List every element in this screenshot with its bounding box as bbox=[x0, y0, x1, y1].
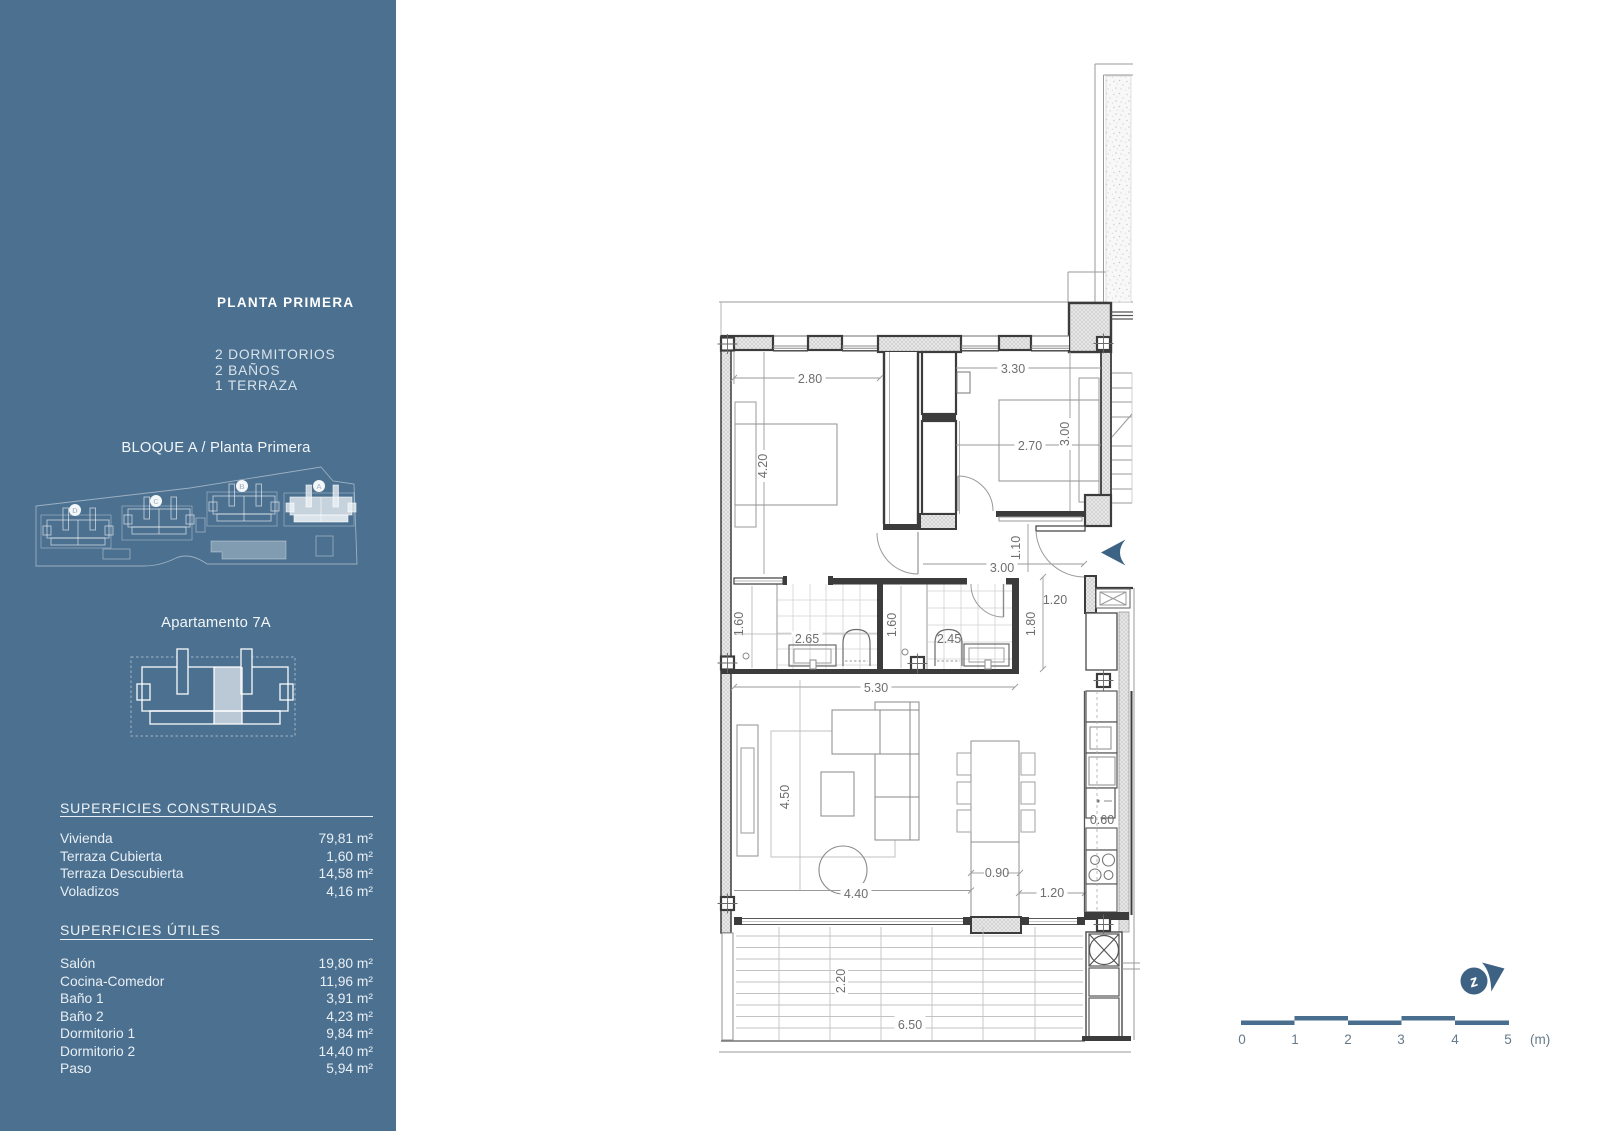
svg-text:1.80: 1.80 bbox=[1024, 612, 1038, 636]
svg-text:0.90: 0.90 bbox=[985, 866, 1009, 880]
svg-text:0.60: 0.60 bbox=[1090, 813, 1114, 827]
svg-text:3.30: 3.30 bbox=[1001, 362, 1025, 376]
svg-text:4.20: 4.20 bbox=[756, 454, 770, 478]
svg-text:0: 0 bbox=[1238, 1032, 1246, 1047]
svg-text:3: 3 bbox=[1397, 1032, 1405, 1047]
svg-text:6.50: 6.50 bbox=[898, 1018, 922, 1032]
svg-text:1: 1 bbox=[1291, 1032, 1299, 1047]
svg-text:1.60: 1.60 bbox=[732, 612, 746, 636]
svg-text:3.00: 3.00 bbox=[990, 561, 1014, 575]
svg-text:2.45: 2.45 bbox=[937, 632, 961, 646]
svg-text:1.10: 1.10 bbox=[1009, 536, 1023, 560]
svg-text:1.20: 1.20 bbox=[1043, 593, 1067, 607]
svg-text:4.50: 4.50 bbox=[778, 785, 792, 809]
svg-text:1.60: 1.60 bbox=[885, 613, 899, 637]
svg-text:4: 4 bbox=[1451, 1032, 1459, 1047]
svg-text:5: 5 bbox=[1504, 1032, 1512, 1047]
svg-text:2.70: 2.70 bbox=[1018, 439, 1042, 453]
svg-text:1.20: 1.20 bbox=[1040, 886, 1064, 900]
svg-text:2.80: 2.80 bbox=[798, 372, 822, 386]
svg-text:2: 2 bbox=[1344, 1032, 1352, 1047]
svg-text:(m): (m) bbox=[1530, 1032, 1550, 1047]
svg-text:4.40: 4.40 bbox=[844, 887, 868, 901]
svg-text:2.65: 2.65 bbox=[795, 632, 819, 646]
svg-text:2.20: 2.20 bbox=[834, 969, 848, 993]
svg-text:5.30: 5.30 bbox=[864, 681, 888, 695]
svg-text:3.00: 3.00 bbox=[1058, 422, 1072, 446]
